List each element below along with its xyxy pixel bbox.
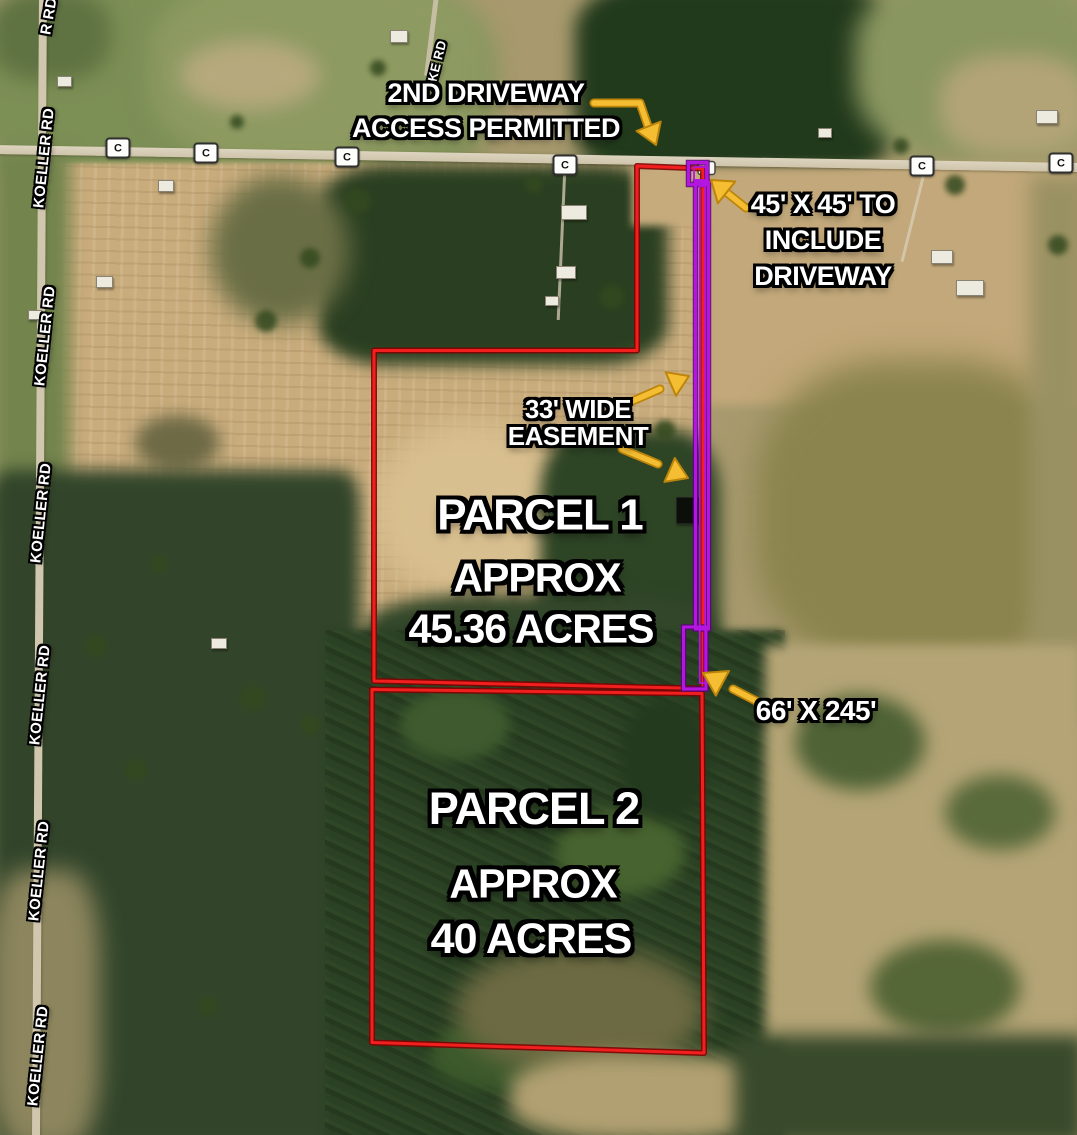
callout-line: 45' X 45' TO xyxy=(751,186,895,222)
callout-line: ACCESS PERMITTED xyxy=(352,111,620,146)
callout-line: EASEMENT xyxy=(508,423,648,450)
parcel-2-title: PARCEL 2 xyxy=(429,780,639,839)
callout-line: 2ND DRIVEWAY xyxy=(352,76,620,111)
parcel-1-approx: APPROX xyxy=(453,551,620,604)
arrowhead xyxy=(666,372,689,396)
callout-line: DRIVEWAY xyxy=(751,258,895,294)
arrowhead xyxy=(664,458,688,482)
easement-boundary xyxy=(684,163,709,690)
parcel-2-acreage: 40 ACRES xyxy=(431,912,632,968)
parcel-2-approx: APPROX xyxy=(449,857,616,910)
callout-second-driveway: 2ND DRIVEWAY ACCESS PERMITTED xyxy=(352,76,620,146)
parcel-1-acreage: 45.36 ACRES xyxy=(409,602,654,655)
callout-line: 33' WIDE xyxy=(508,396,648,423)
callout-driveway-square: 45' X 45' TO INCLUDE DRIVEWAY xyxy=(751,186,895,294)
parcel-1-title: PARCEL 1 xyxy=(437,486,643,543)
arrow-easement-lower xyxy=(622,449,658,464)
callout-line: INCLUDE xyxy=(751,222,895,258)
aerial-parcel-map: C C C C C C xyxy=(0,0,1077,1135)
callout-easement: 33' WIDE EASEMENT xyxy=(508,396,648,450)
callout-access-strip: 66' X 245' xyxy=(756,693,876,729)
